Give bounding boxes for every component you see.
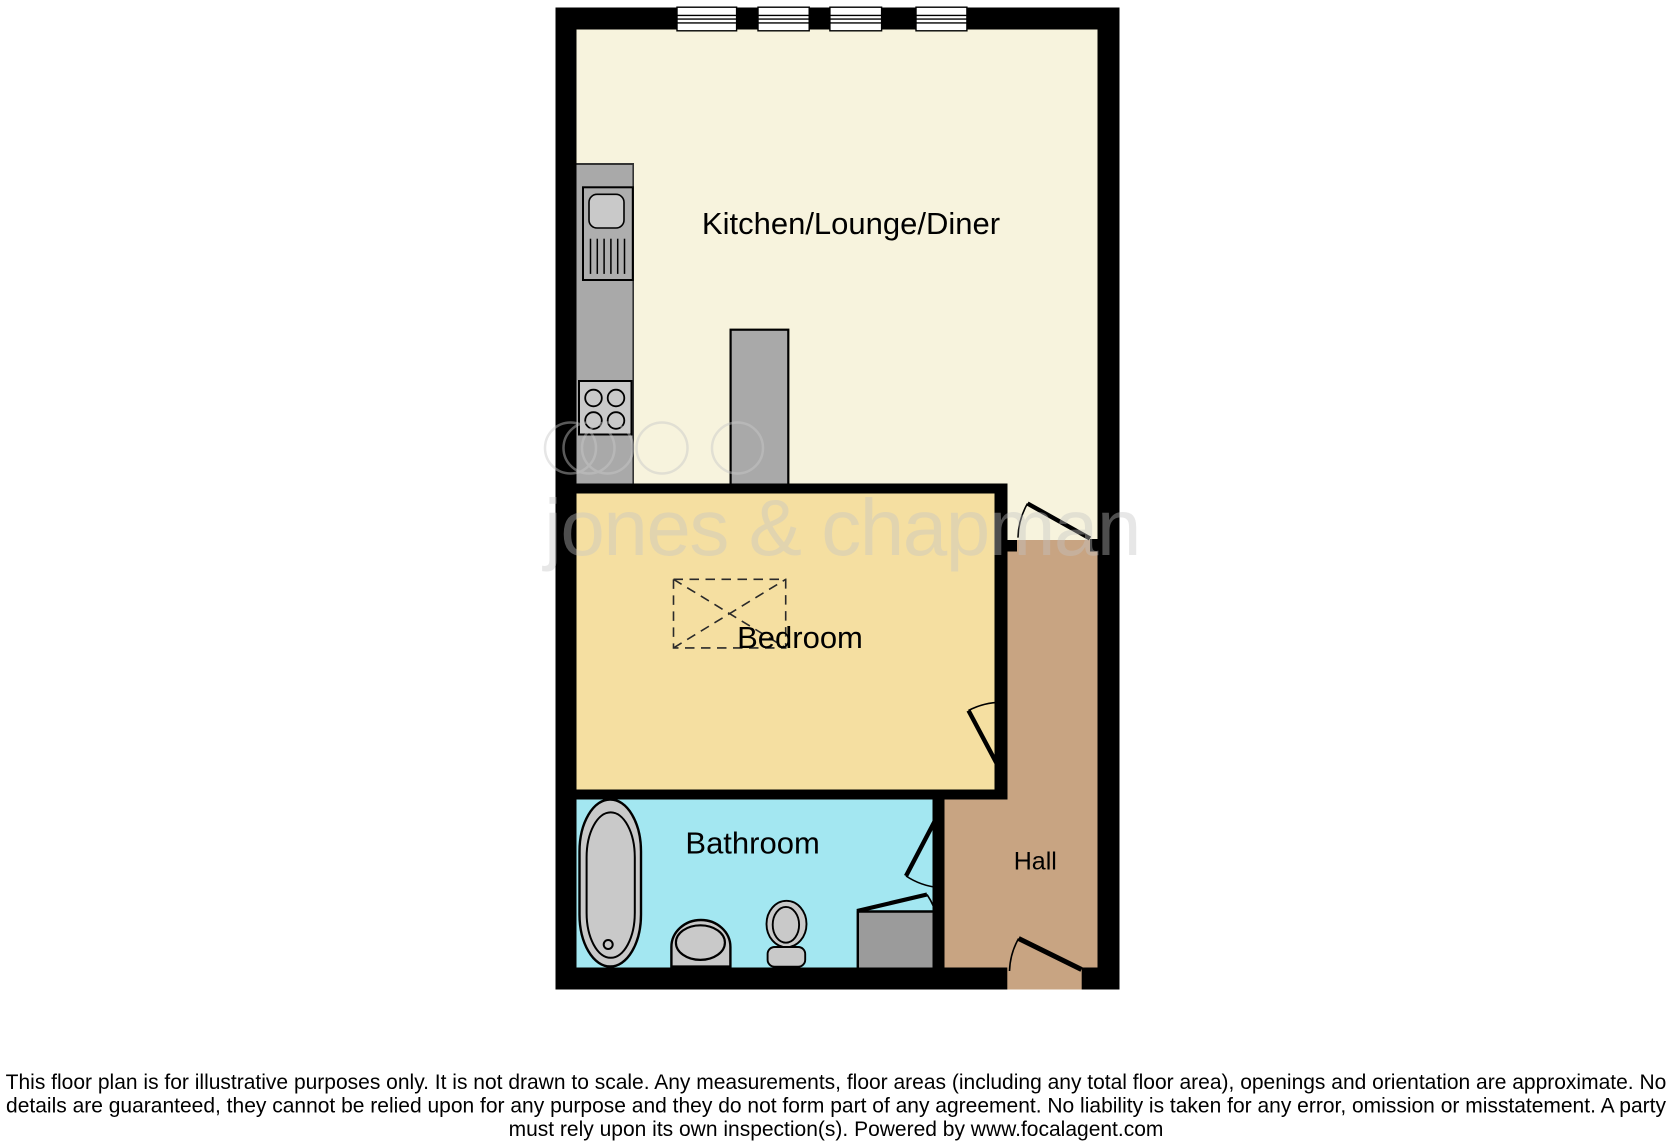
svg-text:details are guaranteed, they c: details are guaranteed, they cannot be r… xyxy=(6,1095,1666,1118)
svg-text:Hall: Hall xyxy=(1014,847,1057,875)
svg-text:Bedroom: Bedroom xyxy=(737,620,863,655)
svg-text:Bathroom: Bathroom xyxy=(685,825,819,860)
svg-text:Kitchen/Lounge/Diner: Kitchen/Lounge/Diner xyxy=(702,206,1000,241)
svg-text:jones & chapman: jones & chapman xyxy=(542,483,1140,572)
svg-text:must rely upon its own inspect: must rely upon its own inspection(s). Po… xyxy=(509,1118,1164,1141)
svg-text:This floor plan is for illustr: This floor plan is for illustrative purp… xyxy=(6,1071,1667,1094)
